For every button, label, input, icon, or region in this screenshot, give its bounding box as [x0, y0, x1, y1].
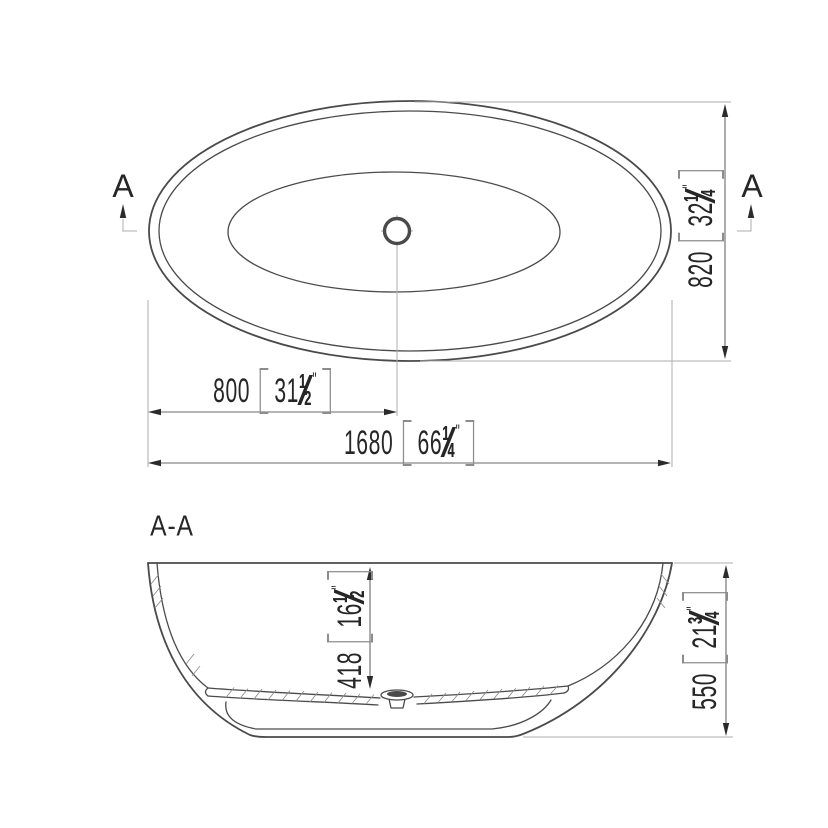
inch-mark: " — [312, 371, 316, 390]
bracket-open-icon — [259, 368, 268, 414]
section-arrow-icon — [120, 204, 126, 218]
dim-mm-value: 800 — [213, 374, 250, 408]
cut-hatching — [151, 574, 669, 704]
dim-depth-418-label: 418 16 1⁄2 " — [327, 571, 373, 689]
dim-mm-value: 418 — [333, 652, 367, 689]
section-marker-right — [737, 204, 754, 231]
fraction: 1⁄2 — [332, 591, 367, 603]
arrow-left — [148, 409, 161, 415]
drain-top-view — [381, 215, 413, 416]
fraction: 3⁄4 — [687, 612, 722, 624]
base-pocket-outline — [226, 700, 551, 729]
bracket-open-icon — [682, 655, 728, 664]
fraction: 1⁄2 — [299, 373, 311, 408]
inner-wall-left — [157, 563, 208, 688]
technical-drawing-canvas: A A A-A 800 31 1⁄2 " 1680 66 1⁄4 " 820 3… — [0, 0, 828, 828]
bracket-close-icon — [678, 170, 724, 179]
dim-width-820-label: 820 32 1⁄4 " — [678, 170, 724, 288]
inch-mark: " — [456, 423, 460, 442]
fraction: 1⁄4 — [683, 190, 718, 202]
section-view-title: A-A — [150, 513, 194, 542]
section-marker-right-label: A — [741, 170, 762, 202]
dim-inch-value: 31 — [274, 374, 299, 408]
bracket-close-icon — [682, 592, 728, 601]
drain-circle — [385, 219, 410, 244]
bracket-open-icon — [403, 420, 412, 466]
bracket-close-icon — [327, 571, 373, 580]
dim-length-1680-label: 1680 66 1⁄4 " — [344, 420, 474, 466]
arrow-down — [723, 723, 729, 736]
inch-mark: " — [685, 606, 704, 610]
dim-mm-value: 820 — [684, 251, 718, 288]
bracket-close-icon — [322, 368, 331, 414]
section-bracket — [737, 219, 751, 231]
dim-inch-value: 16 — [333, 603, 367, 628]
fraction: 1⁄4 — [442, 425, 454, 460]
dim-inch-value: 21 — [688, 624, 722, 649]
dim-height-550-label: 550 21 3⁄4 " — [682, 592, 728, 710]
section-bracket — [123, 219, 137, 231]
inch-mark: " — [681, 184, 700, 188]
dim-drain-800-label: 800 31 1⁄2 " — [213, 368, 331, 414]
bracket-open-icon — [327, 634, 373, 643]
arrow-right — [658, 460, 671, 466]
arrow-left — [148, 460, 161, 466]
dim-mm-value: 1680 — [344, 426, 393, 460]
dim-inch-value: 32 — [684, 202, 718, 227]
arrow-up — [723, 565, 729, 578]
section-view — [148, 563, 733, 737]
inner-wall-right — [568, 563, 663, 686]
inch-mark: " — [330, 585, 349, 589]
section-marker-left-label: A — [112, 170, 133, 202]
bracket-open-icon — [678, 233, 724, 242]
section-arrow-icon — [748, 204, 754, 218]
bracket-close-icon — [465, 420, 474, 466]
arrow-down — [722, 346, 728, 359]
dim-inch-value: 66 — [418, 426, 443, 460]
drain-section — [381, 690, 413, 708]
arrow-right — [384, 409, 397, 415]
arrow-up — [722, 104, 728, 117]
dim-mm-value: 550 — [688, 673, 722, 710]
section-marker-left — [120, 204, 137, 231]
